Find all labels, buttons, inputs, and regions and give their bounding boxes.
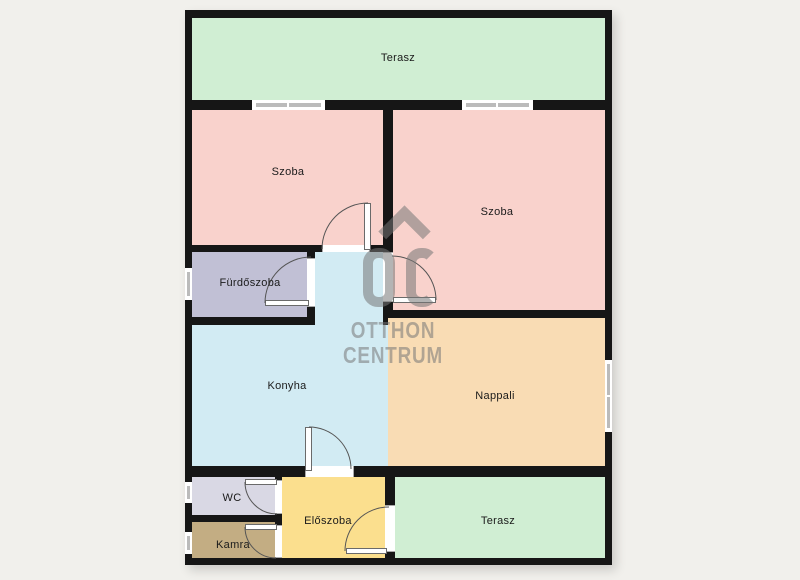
door-leaf-konyha bbox=[305, 427, 312, 471]
door-leaf-szoba-left bbox=[364, 203, 371, 250]
window-terrace-right bbox=[462, 100, 533, 110]
label-szoba-right: Szoba bbox=[481, 206, 514, 218]
label-wc: WC bbox=[223, 492, 242, 504]
label-nappali: Nappali bbox=[475, 390, 514, 402]
window-divider bbox=[606, 395, 611, 397]
door-opening-wc bbox=[275, 480, 282, 514]
window-nappali bbox=[605, 360, 612, 432]
door-leaf-furdoszoba bbox=[265, 300, 309, 306]
window-wc bbox=[185, 482, 192, 503]
door-opening-szoba-left bbox=[322, 245, 370, 252]
watermark-logo-c bbox=[406, 248, 438, 307]
label-kamra: Kamra bbox=[216, 539, 250, 551]
door-leaf-terasz bbox=[346, 548, 387, 554]
watermark-line1: OTTHON bbox=[315, 317, 471, 344]
door-leaf-wc bbox=[245, 479, 277, 485]
door-opening-terasz bbox=[385, 505, 395, 552]
window-bathroom bbox=[185, 268, 192, 300]
window-terrace-left bbox=[252, 100, 325, 110]
label-eloszoba: Előszoba bbox=[304, 515, 352, 527]
window-kamra bbox=[185, 532, 192, 554]
watermark-line2: CENTRUM bbox=[315, 342, 471, 369]
label-konyha: Konyha bbox=[267, 380, 306, 392]
label-terasz-top: Terasz bbox=[381, 52, 415, 64]
watermark-logo-o bbox=[363, 248, 395, 307]
window-glass bbox=[187, 486, 190, 499]
door-opening-konyha bbox=[305, 466, 354, 477]
door-leaf-kamra bbox=[245, 524, 277, 530]
window-divider bbox=[496, 102, 498, 108]
floor-plan: Terasz Szoba Szoba Fürdőszoba Konyha Nap… bbox=[0, 0, 800, 580]
label-furdoszoba: Fürdőszoba bbox=[219, 277, 280, 289]
window-glass bbox=[187, 272, 190, 296]
window-glass bbox=[187, 536, 190, 550]
label-szoba-left: Szoba bbox=[272, 166, 305, 178]
window-divider bbox=[287, 102, 289, 108]
label-terasz-bottom: Terasz bbox=[481, 515, 515, 527]
